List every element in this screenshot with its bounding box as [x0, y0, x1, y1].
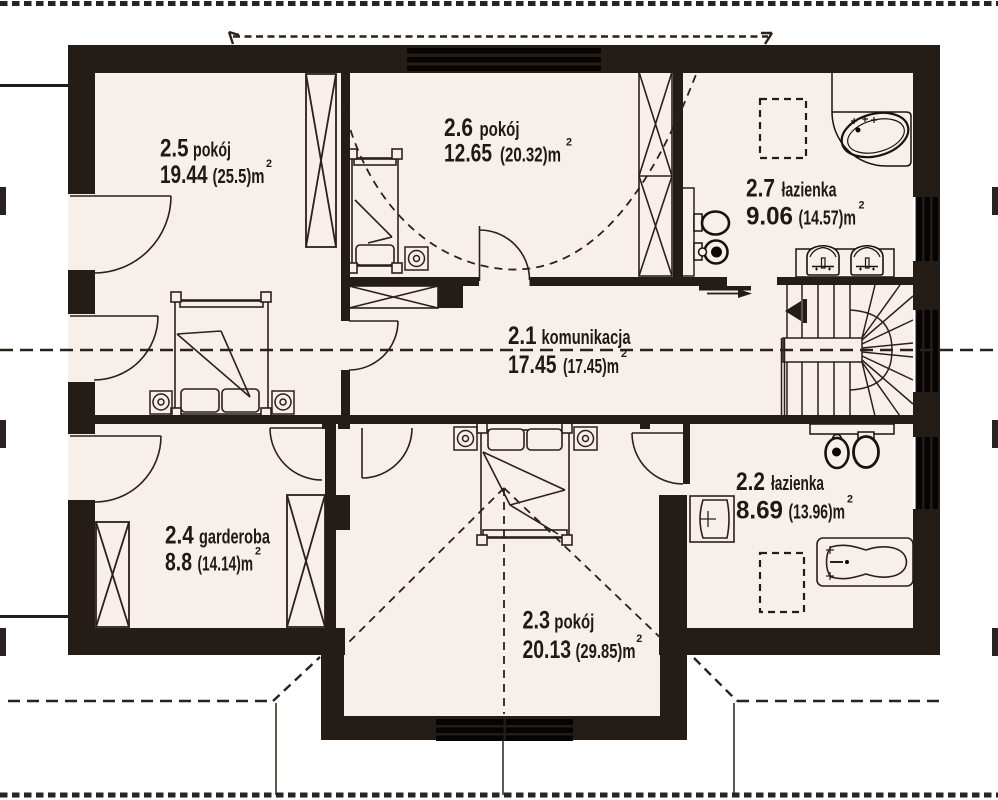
svg-text:8.8: 8.8 [165, 549, 192, 577]
svg-text:pokój: pokój [554, 612, 594, 634]
svg-text:12.65: 12.65 [444, 140, 492, 168]
svg-text:2.2: 2.2 [736, 468, 765, 496]
svg-text:(13.96)m: (13.96)m [789, 502, 846, 524]
svg-text:(25.5)m: (25.5)m [213, 166, 265, 188]
svg-text:(14.14)m: (14.14)m [198, 554, 254, 576]
svg-text:2.7: 2.7 [746, 175, 775, 203]
svg-text:8.69: 8.69 [736, 497, 783, 525]
svg-text:9.06: 9.06 [746, 203, 793, 231]
svg-text:2.1: 2.1 [508, 322, 537, 350]
svg-text:19.44: 19.44 [160, 161, 208, 189]
svg-text:pokój: pokój [193, 140, 231, 162]
svg-text:2: 2 [266, 158, 272, 170]
svg-text:2: 2 [566, 137, 572, 149]
svg-text:łazienka: łazienka [782, 180, 838, 202]
svg-text:2: 2 [255, 546, 261, 558]
svg-text:2: 2 [859, 200, 865, 212]
svg-text:2.4: 2.4 [165, 522, 194, 550]
svg-text:pokój: pokój [480, 119, 520, 141]
svg-text:2: 2 [636, 633, 642, 645]
svg-text:2.6: 2.6 [444, 114, 473, 142]
svg-text:(20.32)m: (20.32)m [500, 145, 561, 167]
svg-text:(14.57)m: (14.57)m [799, 208, 857, 230]
svg-text:17.45: 17.45 [508, 351, 557, 379]
svg-text:2.3: 2.3 [523, 607, 551, 635]
svg-text:(17.45)m: (17.45)m [563, 356, 619, 378]
svg-text:2: 2 [621, 348, 627, 360]
svg-text:łazienka: łazienka [771, 473, 825, 495]
svg-text:2.5: 2.5 [160, 135, 189, 163]
svg-text:20.13: 20.13 [523, 636, 572, 664]
svg-text:2: 2 [847, 494, 853, 506]
svg-text:(29.85)m: (29.85)m [576, 641, 636, 663]
svg-text:komunikacja: komunikacja [542, 327, 632, 349]
